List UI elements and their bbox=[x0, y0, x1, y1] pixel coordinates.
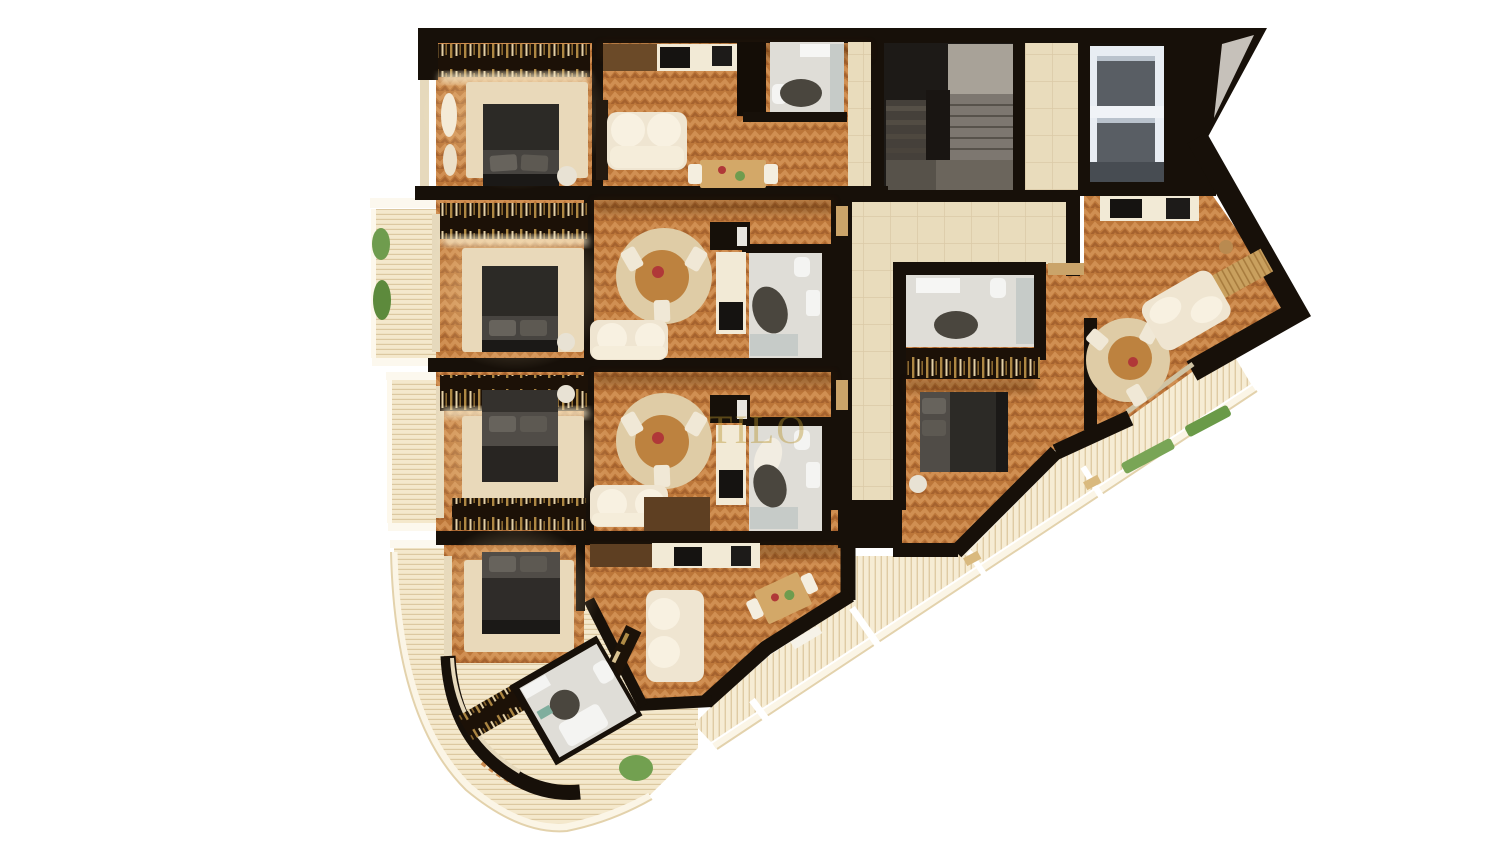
svg-text:TILO: TILO bbox=[708, 407, 807, 452]
